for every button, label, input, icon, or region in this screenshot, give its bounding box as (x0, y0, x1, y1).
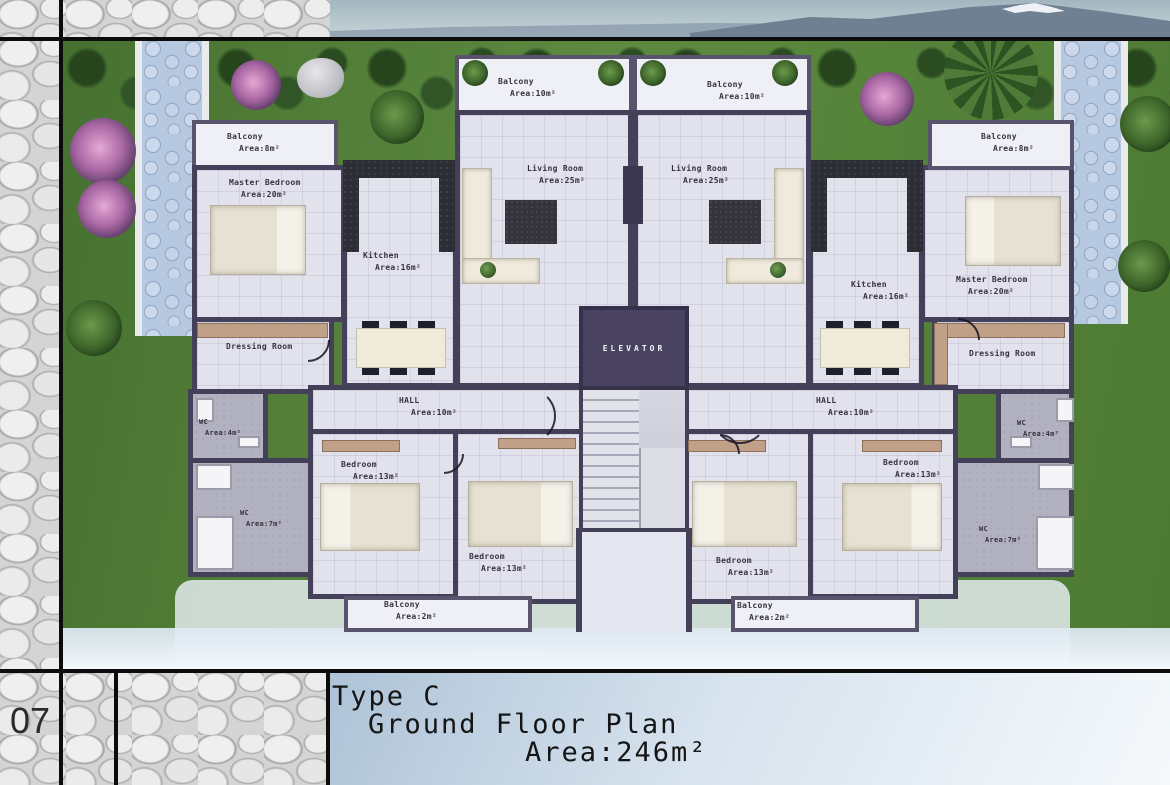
label-master-left: Master BedroomArea:20m² (229, 177, 301, 202)
shower (196, 516, 234, 570)
wardrobe-bedroom (322, 440, 400, 452)
sofa-left (462, 168, 492, 268)
label-kitchen-right: KitchenArea:16m² (851, 279, 909, 304)
kitchen-counter-right (811, 160, 827, 252)
bed-bedroom-a-right (842, 483, 942, 551)
sofa-left (462, 258, 540, 284)
label-wc-small-right: WCArea:4m² (1017, 418, 1059, 440)
frame-line (59, 0, 63, 785)
label-bedroom-a-right: BedroomArea:13m² (883, 457, 941, 482)
door-swing (500, 388, 556, 444)
bed-bedroom-b-right (692, 481, 797, 547)
chair (826, 321, 843, 328)
party-wall (623, 166, 643, 224)
chair (882, 368, 899, 375)
chair (362, 321, 379, 328)
houseplant (770, 262, 786, 278)
frame-line (0, 669, 1170, 673)
sofa-right (726, 258, 804, 284)
shower (1038, 464, 1074, 490)
coffee-table-left (505, 200, 557, 244)
title-floor: Ground Floor Plan (368, 709, 678, 740)
elevator-shaft: ELEVATOR (579, 306, 689, 390)
label-hall-left: HALLArea:10m² (399, 395, 457, 420)
wardrobe-bedroom (862, 440, 942, 452)
green-shrub (1120, 96, 1170, 152)
houseplant (480, 262, 496, 278)
pink-tree (231, 60, 281, 110)
mountain-silhouette (330, 0, 1170, 38)
chair (854, 368, 871, 375)
green-shrub (66, 300, 122, 356)
chair (418, 321, 435, 328)
chair (882, 321, 899, 328)
label-bedroom-b-right: BedroomArea:13m² (716, 555, 774, 580)
coffee-table-right (709, 200, 761, 244)
bed-bedroom-a-left (320, 483, 420, 551)
chair (390, 321, 407, 328)
dining-table-right (820, 328, 910, 368)
double-bed-master-left (210, 205, 306, 275)
title-area: Area:246m² (525, 737, 708, 768)
label-living-left: Living RoomArea:25m² (527, 163, 585, 188)
shower (196, 464, 232, 490)
garden-rock (297, 58, 344, 98)
label-kitchen-left: KitchenArea:16m² (363, 250, 421, 275)
driveway-apron (62, 628, 1170, 672)
kitchen-counter-left (343, 160, 359, 252)
chair (418, 368, 435, 375)
label-dressing-left: Dressing Room (226, 341, 293, 353)
chair (390, 368, 407, 375)
kitchen-counter-right (907, 160, 923, 252)
staircase (579, 386, 689, 532)
room-balcony-bottom-left (344, 596, 532, 632)
shower (1036, 516, 1074, 570)
stone-border-left (0, 38, 60, 673)
chair (826, 368, 843, 375)
potted-plant (640, 60, 666, 86)
sky-strip (330, 0, 1170, 38)
label-wc-large-right: WCArea:7m² (979, 524, 1021, 546)
label-dressing-right: Dressing Room (969, 348, 1036, 360)
stair-flight (583, 390, 639, 528)
label-balcony-side-right: BalconyArea:8m² (981, 131, 1034, 156)
label-balcony-bottom-right: BalconyArea:2m² (737, 600, 790, 625)
potted-plant (598, 60, 624, 86)
elevator-label: ELEVATOR (603, 344, 666, 353)
potted-plant (772, 60, 798, 86)
frame-line (326, 669, 330, 785)
chair (362, 368, 379, 375)
label-bedroom-a-left: BedroomArea:13m² (341, 459, 399, 484)
label-hall-right: HALLArea:10m² (816, 395, 874, 420)
bed-bedroom-b-left (468, 481, 573, 547)
label-wc-large-left: WCArea:7m² (240, 508, 282, 530)
label-living-right: Living RoomArea:25m² (671, 163, 729, 188)
label-master-right: Master BedroomArea:20m² (956, 274, 1028, 299)
chair (854, 321, 871, 328)
potted-plant (462, 60, 488, 86)
label-balcony-bottom-left: BalconyArea:2m² (384, 599, 437, 624)
double-bed-master-right (965, 196, 1061, 266)
frame-line (114, 669, 118, 785)
label-balcony-top-left: BalconyArea:10m² (498, 76, 556, 101)
stair-landing (639, 448, 685, 528)
pink-tree (70, 118, 136, 184)
sink (238, 436, 260, 448)
pink-tree (78, 180, 136, 238)
kitchen-counter-left (439, 160, 455, 252)
label-bedroom-b-left: BedroomArea:13m² (469, 551, 527, 576)
green-shrub (370, 90, 424, 144)
frame-line (0, 37, 1170, 41)
title-type: Type C (332, 681, 442, 712)
purple-plant (860, 72, 914, 126)
label-balcony-side-left: BalconyArea:8m² (227, 131, 280, 156)
sheet-number: 07 (10, 700, 50, 742)
entrance-lobby (576, 528, 692, 632)
dining-table-left (356, 328, 446, 368)
label-wc-small-left: WCArea:4m² (199, 417, 241, 439)
label-balcony-top-right: BalconyArea:10m² (707, 79, 765, 104)
green-shrub (1118, 240, 1170, 292)
sofa-right (774, 168, 804, 268)
floor-plan-sheet: ELEVATOR (0, 0, 1170, 785)
stone-border-top (0, 0, 330, 38)
